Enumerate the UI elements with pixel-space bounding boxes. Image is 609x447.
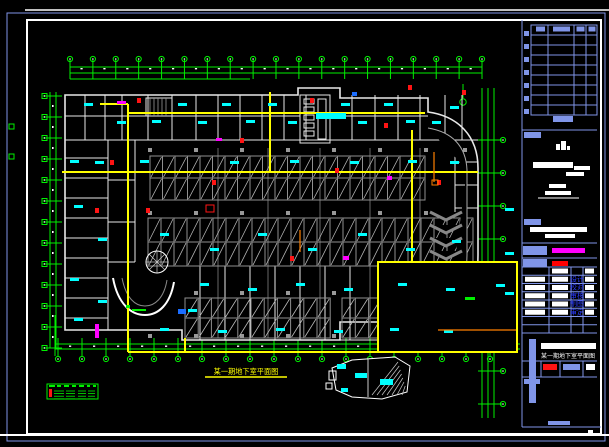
cable-label xyxy=(218,330,227,333)
dim-text xyxy=(52,336,54,338)
dim-text xyxy=(195,68,197,69)
margin-square xyxy=(524,44,529,49)
cable-label xyxy=(74,318,83,321)
grid-bubble-dot xyxy=(184,58,186,60)
dim-text xyxy=(309,346,311,347)
frame-tick xyxy=(588,430,593,434)
grid-bubble-dot xyxy=(44,347,45,348)
green-symbol xyxy=(465,297,475,300)
grid-bubble-dot xyxy=(153,358,155,360)
dim-text xyxy=(333,346,335,347)
vertical-bar xyxy=(529,339,536,403)
label-cell xyxy=(523,246,547,255)
dim-text xyxy=(264,68,266,69)
cable-label xyxy=(248,288,257,291)
cable-label xyxy=(276,328,285,331)
rev-header-cell xyxy=(536,27,545,32)
column xyxy=(194,334,198,338)
column xyxy=(463,148,467,152)
cable-label xyxy=(210,248,219,251)
fire-device xyxy=(137,98,141,103)
role-label: 审定 xyxy=(570,307,584,316)
dim-text xyxy=(52,210,54,212)
grid-bubble-dot xyxy=(458,58,460,60)
grid-bubble-dot xyxy=(249,358,251,360)
grid-bubble-dot xyxy=(57,358,59,360)
cable-label xyxy=(230,161,239,164)
role-value-cell xyxy=(525,293,545,298)
cable-label xyxy=(188,309,197,312)
dim-text xyxy=(261,346,263,347)
dim-text xyxy=(285,346,287,347)
grid-bubble-dot xyxy=(207,58,209,60)
cable-label xyxy=(505,208,514,211)
legend-header-cell xyxy=(72,385,76,387)
dim-text xyxy=(286,68,288,69)
legend-header-cell xyxy=(79,385,84,387)
cad-sheet-viewport[interactable]: 某一期地下室平面图 某一期地下室平面图 设计校对审核制图审定 xyxy=(0,0,609,447)
cable-label xyxy=(160,233,169,236)
cable-label xyxy=(288,121,297,124)
grid-bubble-dot xyxy=(321,58,323,60)
cable-label xyxy=(117,121,126,124)
cable-label xyxy=(160,328,169,331)
dim-text xyxy=(80,68,82,69)
grid-bubble-dot xyxy=(44,179,45,180)
dim-text xyxy=(189,346,191,347)
grid-bubble-dot xyxy=(44,305,45,306)
fire-device xyxy=(384,123,388,128)
cable-label xyxy=(70,278,79,281)
cable-label xyxy=(384,103,393,106)
cable-label xyxy=(258,233,267,236)
dim-text xyxy=(93,346,95,347)
magenta-device xyxy=(343,256,349,260)
cable-label xyxy=(246,120,255,123)
stamp-bar xyxy=(553,116,573,122)
column xyxy=(424,148,428,152)
cable-label xyxy=(341,103,350,106)
section-tab xyxy=(524,132,541,138)
grid-bubble-dot xyxy=(275,58,277,60)
grid-bubble-dot xyxy=(44,242,45,243)
column xyxy=(378,211,382,215)
cable-label xyxy=(178,103,187,106)
column xyxy=(240,148,244,152)
role-value-cell xyxy=(525,277,545,282)
grid-bubble-dot xyxy=(69,58,71,60)
grid-bubble-dot xyxy=(435,58,437,60)
role-value-cell xyxy=(525,285,545,290)
dim-text xyxy=(241,68,243,69)
firm-name-bar xyxy=(533,162,573,168)
grid-bubble-dot xyxy=(273,358,275,360)
cable-label xyxy=(406,248,415,251)
project-text-bar xyxy=(545,234,575,238)
section-tab xyxy=(524,219,541,225)
cable-label xyxy=(198,121,207,124)
label-cell xyxy=(523,259,547,267)
grid-bubble-dot xyxy=(44,284,45,285)
magenta-device xyxy=(117,101,126,104)
dim-text xyxy=(52,147,54,149)
cable-label xyxy=(140,160,149,163)
legend-header-cell xyxy=(93,385,96,387)
cable-label xyxy=(496,284,505,287)
margin-square xyxy=(524,57,529,62)
dim-text xyxy=(52,273,54,275)
section-tab xyxy=(524,379,540,384)
fire-device xyxy=(146,208,150,213)
grid-bubble-dot xyxy=(390,58,392,60)
dim-text xyxy=(309,68,311,69)
cable-label xyxy=(334,330,343,333)
grid-bubble-dot xyxy=(441,358,443,360)
dim-text xyxy=(332,68,334,69)
legend-header-cell xyxy=(57,385,61,387)
dim-text xyxy=(69,346,71,347)
column xyxy=(148,334,152,338)
logo-mark xyxy=(561,141,566,150)
role-value-cell xyxy=(585,310,594,315)
dim-text xyxy=(141,346,143,347)
grid-bubble-dot xyxy=(44,221,45,222)
dim-text xyxy=(52,315,54,317)
grid-bubble-dot xyxy=(92,58,94,60)
role-label: 审核 xyxy=(570,291,584,300)
role-value-cell xyxy=(585,293,594,298)
dim-text xyxy=(401,68,403,69)
cable-label xyxy=(432,121,441,124)
fire-device xyxy=(290,256,294,261)
rev-header-cell xyxy=(589,27,596,32)
path xyxy=(378,262,517,352)
margin-square xyxy=(524,70,529,75)
cable-label xyxy=(446,288,455,291)
firm-text-bar xyxy=(549,184,566,188)
plan-caption-text: 某一期地下室平面图 xyxy=(214,367,279,376)
dim-text xyxy=(103,68,105,69)
column xyxy=(148,148,152,152)
grid-bubble-dot xyxy=(502,403,504,405)
dim-text xyxy=(149,68,151,69)
cable-label xyxy=(74,205,83,208)
grid-bubble-dot xyxy=(201,358,203,360)
cable-label xyxy=(408,160,417,163)
green-symbol xyxy=(126,305,130,308)
column xyxy=(286,211,290,215)
cable-label xyxy=(358,233,367,236)
dim-text xyxy=(218,68,220,69)
fire-device xyxy=(110,160,114,165)
grid-bubble-dot xyxy=(321,358,323,360)
cable-label xyxy=(84,103,93,106)
margin-square xyxy=(524,31,529,36)
inset-label xyxy=(341,388,348,392)
column xyxy=(240,211,244,215)
role-value-cell xyxy=(585,277,594,282)
dim-text xyxy=(52,231,54,233)
dim-text xyxy=(126,68,128,69)
cable-label xyxy=(406,120,415,123)
grid-bubble-dot xyxy=(344,58,346,60)
column xyxy=(194,211,198,215)
logo-mark xyxy=(567,146,570,150)
cable-label xyxy=(505,252,514,255)
cable-label xyxy=(358,121,367,124)
column xyxy=(194,148,198,152)
grid-bubble-dot xyxy=(44,95,45,96)
grid-bubble-dot xyxy=(105,358,107,360)
cable-label xyxy=(222,103,231,106)
fire-device xyxy=(95,208,99,213)
margin-square xyxy=(524,109,529,114)
green-symbol xyxy=(132,309,146,311)
grid-bubble-dot xyxy=(345,358,347,360)
grid-bubble-dot xyxy=(44,200,45,201)
grid-bubble-dot xyxy=(413,58,415,60)
dim-text xyxy=(52,189,54,191)
magenta-bar xyxy=(552,248,585,253)
rev-header-cell xyxy=(553,27,570,32)
grid-bubble-dot xyxy=(252,58,254,60)
cable-label xyxy=(308,248,317,251)
cable-label xyxy=(98,300,107,303)
grid-bubble-dot xyxy=(502,172,504,174)
column xyxy=(332,211,336,215)
column xyxy=(286,291,290,295)
dim-text xyxy=(213,346,215,347)
column xyxy=(286,148,290,152)
column xyxy=(194,291,198,295)
role-value-cell xyxy=(585,302,594,307)
cable-label xyxy=(390,328,399,331)
dim-text xyxy=(52,105,54,107)
role-value-cell xyxy=(552,277,568,282)
legend-header-cell xyxy=(49,385,55,387)
legend-header-cell xyxy=(64,385,69,387)
scale-blue-cell xyxy=(563,364,580,370)
column xyxy=(332,148,336,152)
role-value-cell xyxy=(525,302,545,307)
grid-bubble-dot xyxy=(138,58,140,60)
magenta-device xyxy=(387,176,392,180)
column xyxy=(424,211,428,215)
dim-text xyxy=(355,68,357,69)
dim-text xyxy=(52,294,54,296)
grid-bubble-dot xyxy=(229,58,231,60)
dim-text xyxy=(357,346,359,347)
grid-bubble-dot xyxy=(129,358,131,360)
fire-device xyxy=(335,168,339,173)
scale-red-cell xyxy=(543,364,557,370)
cable-label xyxy=(350,161,359,164)
blue-device xyxy=(178,309,186,314)
column xyxy=(286,334,290,338)
grid-bubble-dot xyxy=(489,358,491,360)
role-label: 校对 xyxy=(570,283,584,292)
cable-label xyxy=(296,283,305,286)
blue-device xyxy=(352,92,357,96)
grid-bubble-dot xyxy=(417,358,419,360)
magenta-device xyxy=(95,324,99,338)
sheet-no-bar xyxy=(548,421,570,425)
margin-square xyxy=(524,96,529,101)
dim-text xyxy=(52,252,54,254)
grid-bubble-dot xyxy=(502,370,504,372)
fire-device xyxy=(408,85,412,90)
grid-bubble-dot xyxy=(44,263,45,264)
role-label: 设计 xyxy=(570,274,584,283)
cable-label xyxy=(152,120,161,123)
dim-text xyxy=(165,346,167,347)
column xyxy=(378,148,382,152)
column xyxy=(240,291,244,295)
fire-device xyxy=(240,138,244,143)
inset-label xyxy=(355,373,367,378)
dim-text xyxy=(447,68,449,69)
cable-label xyxy=(290,160,299,163)
grid-bubble-dot xyxy=(44,158,45,159)
dim-text xyxy=(237,346,239,347)
dim-text xyxy=(52,168,54,170)
dim-text xyxy=(378,68,380,69)
grid-bubble-dot xyxy=(225,358,227,360)
title-block-drawing-name: 某一期地下室平面图 xyxy=(541,352,595,360)
dim-text xyxy=(470,68,472,69)
rev-header-cell xyxy=(577,27,585,32)
grid-bubble-dot xyxy=(297,358,299,360)
cable-label xyxy=(344,288,353,291)
grid-bubble-dot xyxy=(481,58,483,60)
margin-square xyxy=(524,83,529,88)
dim-text xyxy=(117,346,119,347)
legend-header-cell xyxy=(87,385,90,387)
cable-label xyxy=(450,106,459,109)
grid-bubble-dot xyxy=(367,58,369,60)
role-value-cell xyxy=(585,269,594,274)
grid-bubble-dot xyxy=(81,358,83,360)
role-value-cell xyxy=(552,310,568,315)
cable-label xyxy=(398,283,407,286)
grid-bubble-dot xyxy=(502,205,504,207)
logo-mark xyxy=(556,144,560,150)
grid-bubble-dot xyxy=(161,58,163,60)
cable-label xyxy=(200,283,209,286)
scale-white-cell xyxy=(586,364,595,370)
grid-bubble-dot xyxy=(44,116,45,117)
firm-text-bar xyxy=(545,191,571,195)
cable-label xyxy=(70,160,79,163)
grid-bubble-dot xyxy=(502,139,504,141)
cable-label xyxy=(268,103,277,106)
dim-text xyxy=(424,68,426,69)
cable-label xyxy=(505,292,514,295)
cable-label xyxy=(452,240,461,243)
cable-label xyxy=(98,238,107,241)
role-value-cell xyxy=(552,285,568,290)
cable-label-large xyxy=(316,113,346,119)
plan-caption: 某一期地下室平面图 xyxy=(214,367,279,376)
grid-bubble-dot xyxy=(177,358,179,360)
fire-device xyxy=(462,90,466,95)
column xyxy=(332,291,336,295)
role-value-cell xyxy=(552,302,568,307)
column xyxy=(332,334,336,338)
cable-label xyxy=(450,161,459,164)
firm-name-bar xyxy=(574,166,590,170)
fire-device xyxy=(310,98,314,103)
project-text-bar xyxy=(530,227,587,232)
role-value-cell xyxy=(525,310,545,315)
cad-drawing: 某一期地下室平面图 某一期地下室平面图 设计校对审核制图审定 xyxy=(0,0,609,447)
red-bar xyxy=(552,261,568,266)
grid-bubble-dot xyxy=(115,58,117,60)
inset-label xyxy=(380,379,393,385)
magenta-device xyxy=(216,138,222,141)
drawing-name-bar xyxy=(541,343,596,349)
role-value-cell xyxy=(585,285,594,290)
legend-red-symbol xyxy=(49,389,52,397)
grid-bubble-dot xyxy=(44,326,45,327)
dim-text xyxy=(172,68,174,69)
role-value-cell xyxy=(552,293,568,298)
fire-device xyxy=(212,180,216,185)
firm-name-bar xyxy=(566,172,584,176)
grid-bubble-dot xyxy=(44,137,45,138)
dim-text xyxy=(52,126,54,128)
grid-bubble-dot xyxy=(298,58,300,60)
inset-label xyxy=(337,364,346,369)
grid-bubble-dot xyxy=(502,238,504,240)
cable-label xyxy=(95,161,104,164)
role-label: 制图 xyxy=(570,299,584,308)
role-value-cell xyxy=(552,269,568,274)
grid-bubble-dot xyxy=(465,358,467,360)
